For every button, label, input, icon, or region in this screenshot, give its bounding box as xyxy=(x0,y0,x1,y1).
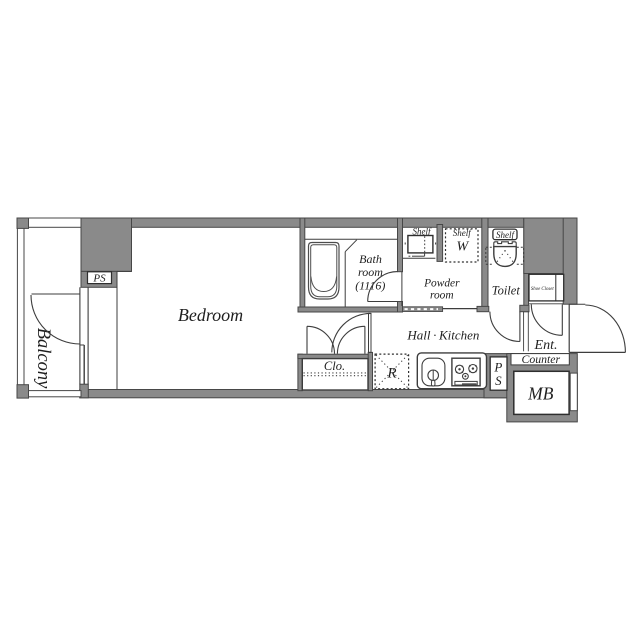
svg-text:Shelf: Shelf xyxy=(453,228,472,238)
svg-text:Shoe Closet: Shoe Closet xyxy=(531,287,554,292)
svg-text:Shelf: Shelf xyxy=(496,230,515,240)
svg-text:room: room xyxy=(430,290,454,302)
svg-text:Balcony: Balcony xyxy=(33,328,53,389)
svg-text:Bath: Bath xyxy=(359,252,382,266)
svg-text:Powder: Powder xyxy=(423,278,460,290)
svg-text:R: R xyxy=(386,366,396,382)
svg-text:PS: PS xyxy=(92,273,106,285)
svg-text:Counter: Counter xyxy=(521,352,560,366)
svg-text:S: S xyxy=(495,373,502,388)
svg-text:Hall · Kitchen: Hall · Kitchen xyxy=(406,328,479,343)
svg-text:W: W xyxy=(456,240,469,255)
svg-text:Clo.: Clo. xyxy=(324,359,345,373)
svg-text:Bedroom: Bedroom xyxy=(178,305,243,325)
svg-text:Toilet: Toilet xyxy=(492,284,521,298)
svg-text:Ent.: Ent. xyxy=(534,338,558,353)
svg-text:MB: MB xyxy=(527,384,554,404)
